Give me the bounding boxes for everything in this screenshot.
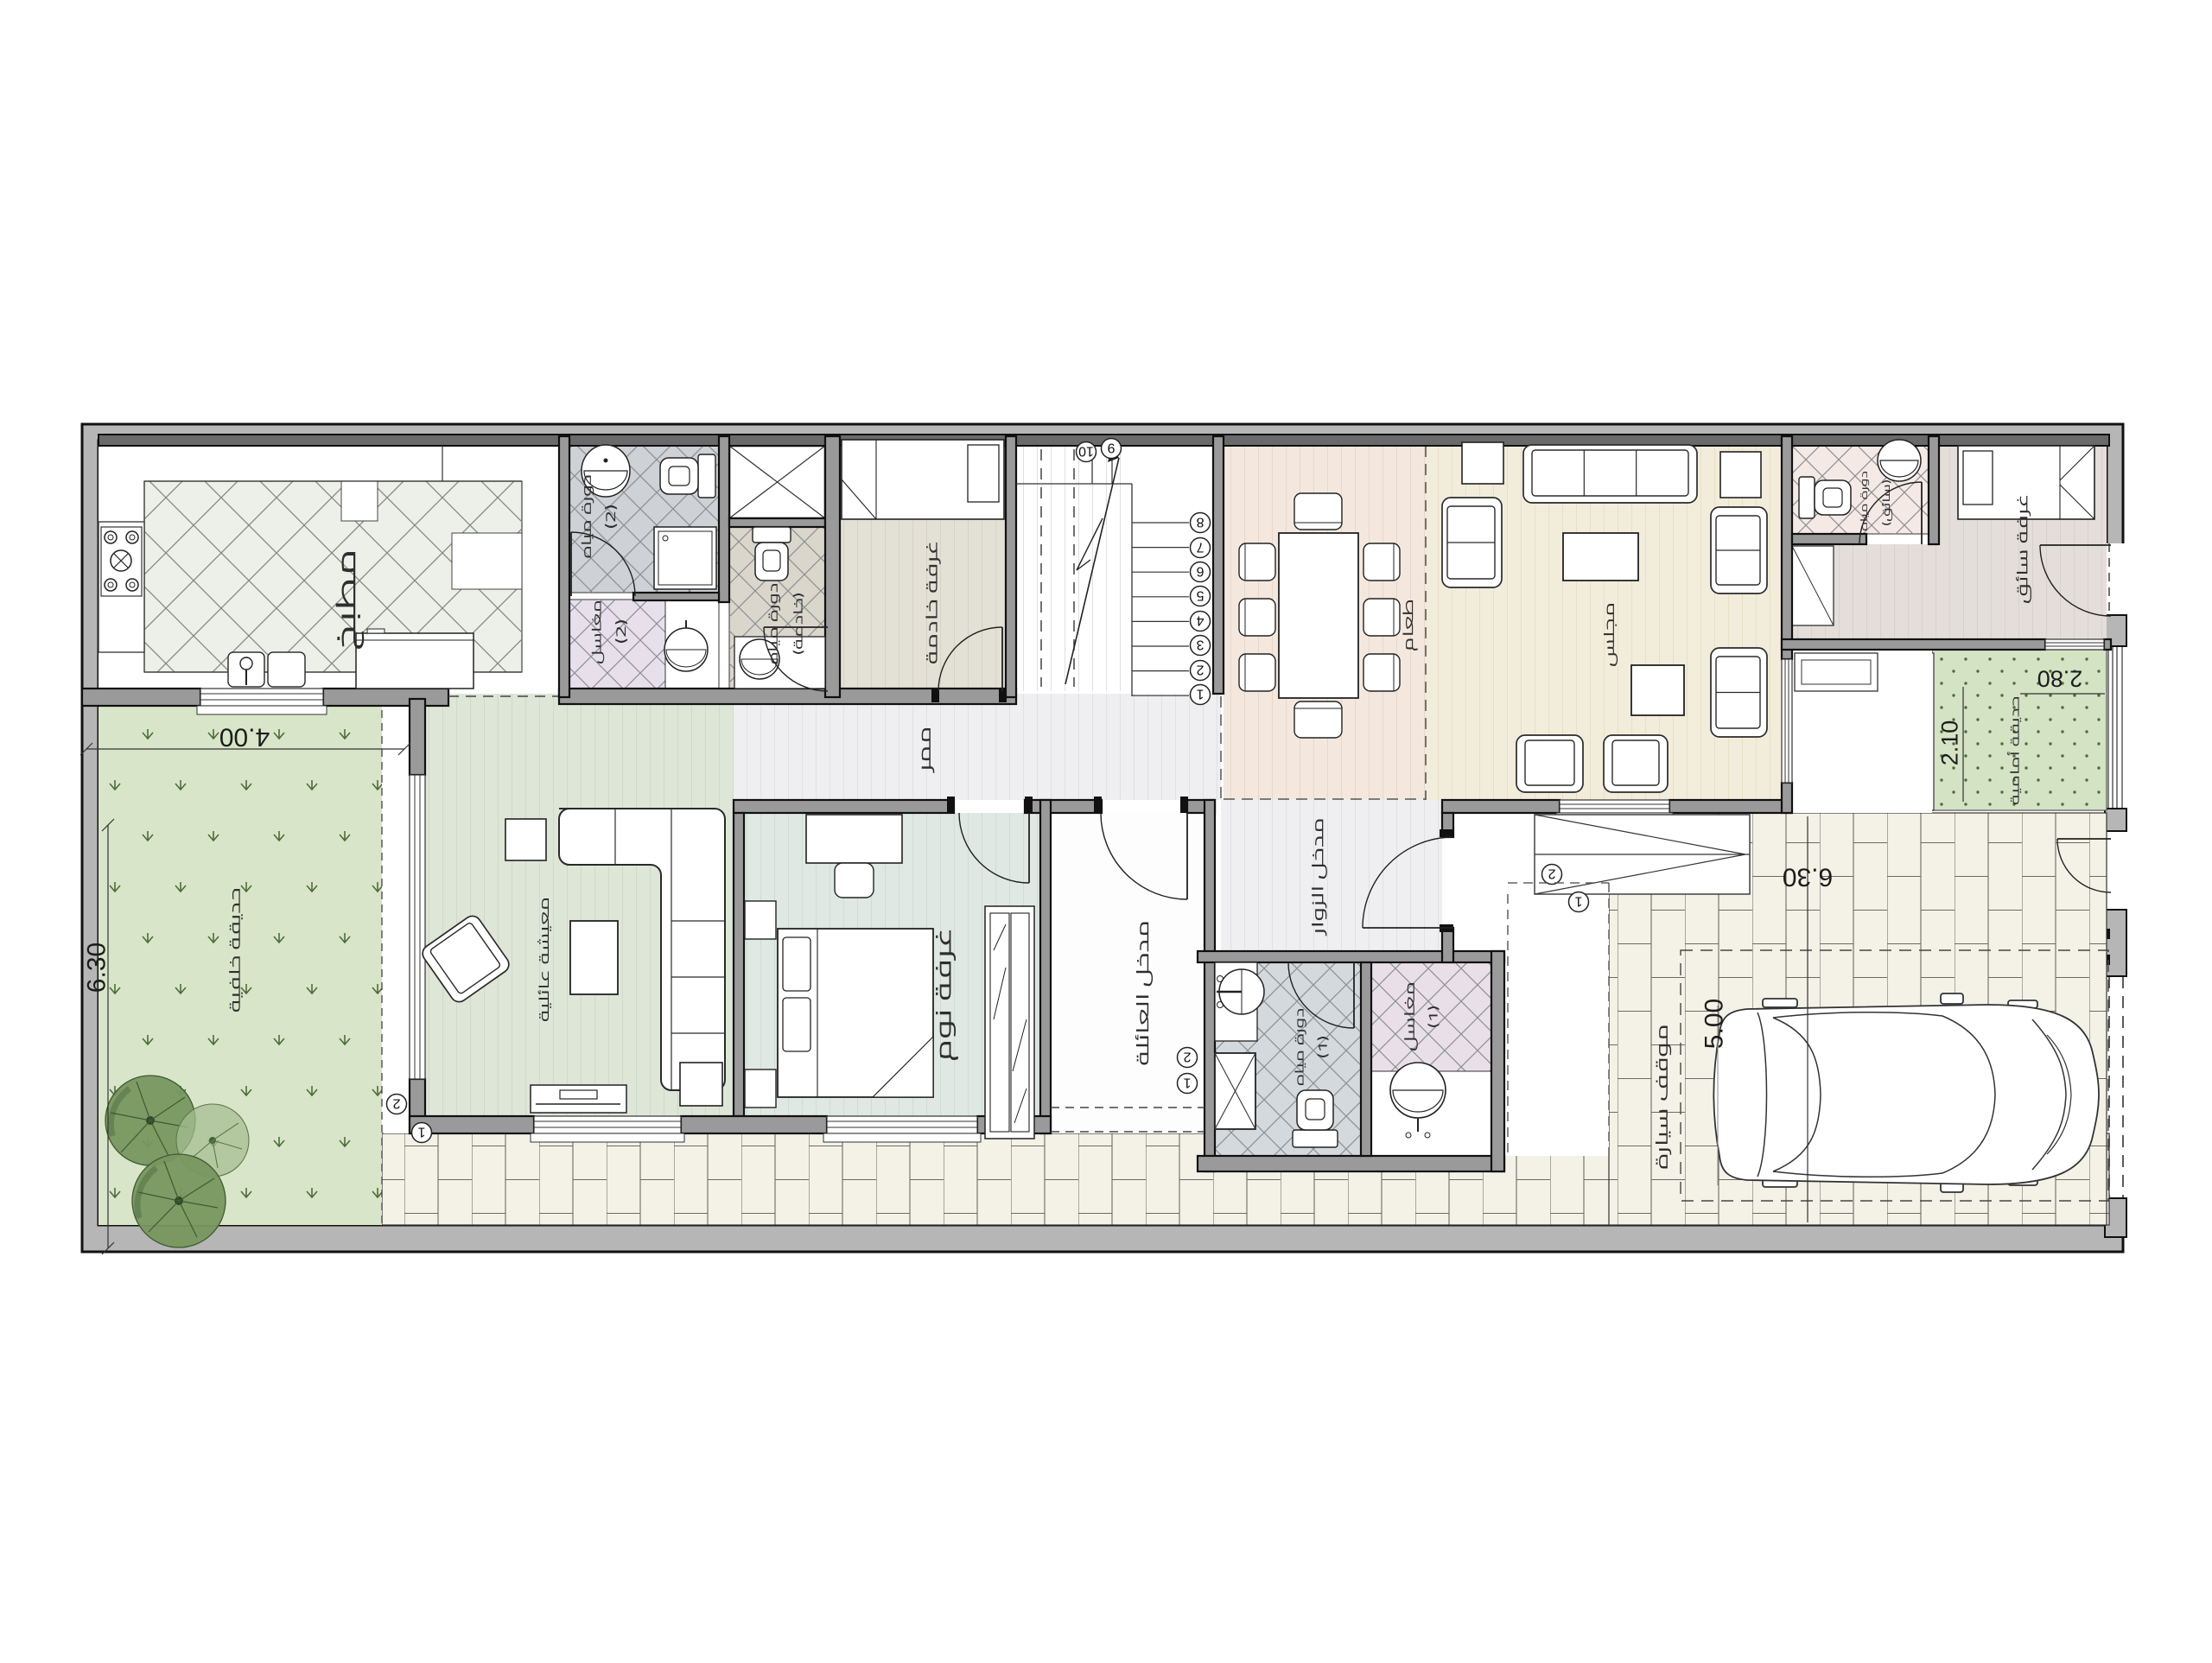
svg-text:1: 1 xyxy=(417,1125,425,1139)
svg-text:1: 1 xyxy=(1183,1076,1191,1090)
svg-text:6: 6 xyxy=(1196,564,1204,579)
svg-text:6.30: 6.30 xyxy=(1783,863,1833,892)
svg-text:2: 2 xyxy=(1196,663,1204,677)
svg-text:10: 10 xyxy=(1078,444,1094,459)
svg-text:1: 1 xyxy=(1196,687,1204,701)
svg-text:6.30: 6.30 xyxy=(83,943,111,993)
svg-text:2: 2 xyxy=(1548,866,1555,881)
svg-text:5.00: 5.00 xyxy=(1700,999,1729,1049)
svg-text:8: 8 xyxy=(1196,515,1204,530)
svg-text:2: 2 xyxy=(392,1096,400,1111)
svg-text:1: 1 xyxy=(1574,894,1582,909)
svg-text:5: 5 xyxy=(1196,588,1204,603)
svg-text:2.10: 2.10 xyxy=(1936,720,1962,766)
svg-text:2: 2 xyxy=(1183,1050,1191,1064)
svg-text:3: 3 xyxy=(1196,638,1204,652)
svg-text:7: 7 xyxy=(1196,540,1204,555)
svg-text:2.80: 2.80 xyxy=(2037,666,2083,692)
svg-text:4.00: 4.00 xyxy=(219,723,270,752)
svg-text:4: 4 xyxy=(1196,613,1204,628)
svg-text:9: 9 xyxy=(1107,441,1115,455)
